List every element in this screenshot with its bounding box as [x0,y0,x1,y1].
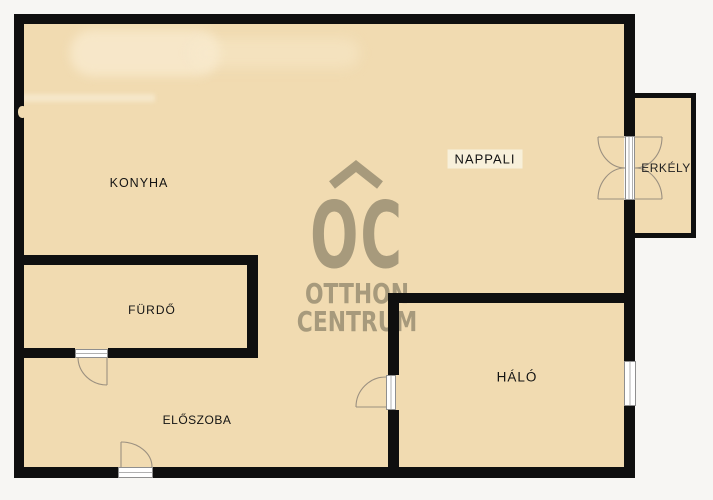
room-label-konyha: KONYHA [110,176,169,190]
floor-plan-canvas: OC OTTHON CENTRUM [0,0,713,500]
room-label-nappali: NAPPALI [448,150,523,169]
room-label-halo: HÁLÓ [497,370,538,385]
room-label-erkely: ERKÉLY [641,161,690,175]
door-swing-overlay [0,0,713,500]
room-label-eloszoba: ELŐSZOBA [163,413,232,427]
room-label-furdo: FÜRDŐ [128,303,176,317]
